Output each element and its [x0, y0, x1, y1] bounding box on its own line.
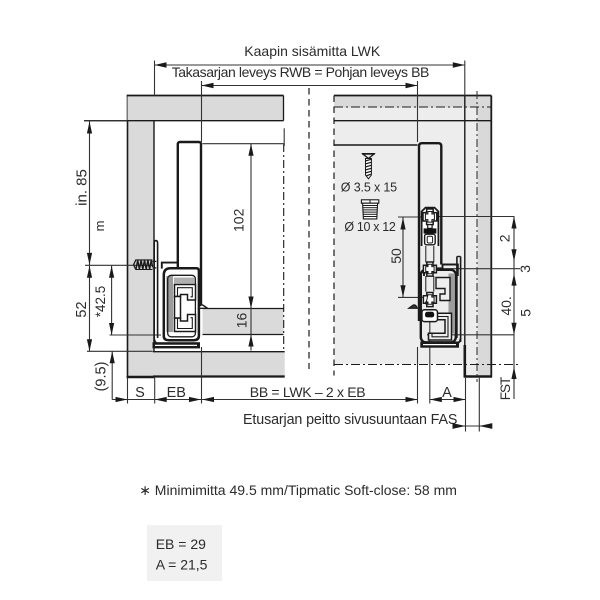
svg-text:Etusarjan peitto sivusuuntaan: Etusarjan peitto sivusuuntaan FAS [243, 412, 457, 428]
svg-text:40.: 40. [498, 296, 514, 315]
svg-text:EB: EB [167, 385, 186, 401]
svg-text:50: 50 [388, 248, 404, 264]
svg-text:16: 16 [234, 313, 250, 329]
svg-text:in. 85: in. 85 [74, 169, 91, 206]
svg-text:*42.5: *42.5 [93, 286, 108, 318]
svg-text:S: S [135, 385, 145, 401]
svg-text:A = 21,5: A = 21,5 [156, 557, 208, 573]
svg-text:Ø 3.5 x 15: Ø 3.5 x 15 [341, 181, 397, 195]
svg-text:102: 102 [231, 208, 247, 232]
svg-text:BB = LWK – 2 x EB: BB = LWK – 2 x EB [250, 384, 365, 400]
svg-text:Ø 10 x 12: Ø 10 x 12 [344, 220, 395, 234]
svg-text:(9.5): (9.5) [94, 362, 110, 392]
svg-text:m: m [92, 221, 107, 232]
svg-text:2: 2 [497, 234, 513, 242]
svg-text:Kaapin sisämitta LWK: Kaapin sisämitta LWK [244, 43, 381, 59]
svg-text:Takasarjan leveys RWB = Pohjan: Takasarjan leveys RWB = Pohjan leveys BB [172, 64, 429, 80]
svg-text:52: 52 [74, 301, 90, 317]
svg-text:FST: FST [498, 377, 513, 400]
svg-text:5: 5 [517, 309, 533, 317]
svg-text:EB = 29: EB = 29 [156, 536, 206, 552]
svg-text:3: 3 [517, 265, 533, 273]
svg-text:∗ Minimimitta 49.5 mm/Tipmatic: ∗ Minimimitta 49.5 mm/Tipmatic Soft-clos… [139, 482, 457, 498]
svg-text:A: A [442, 385, 452, 401]
